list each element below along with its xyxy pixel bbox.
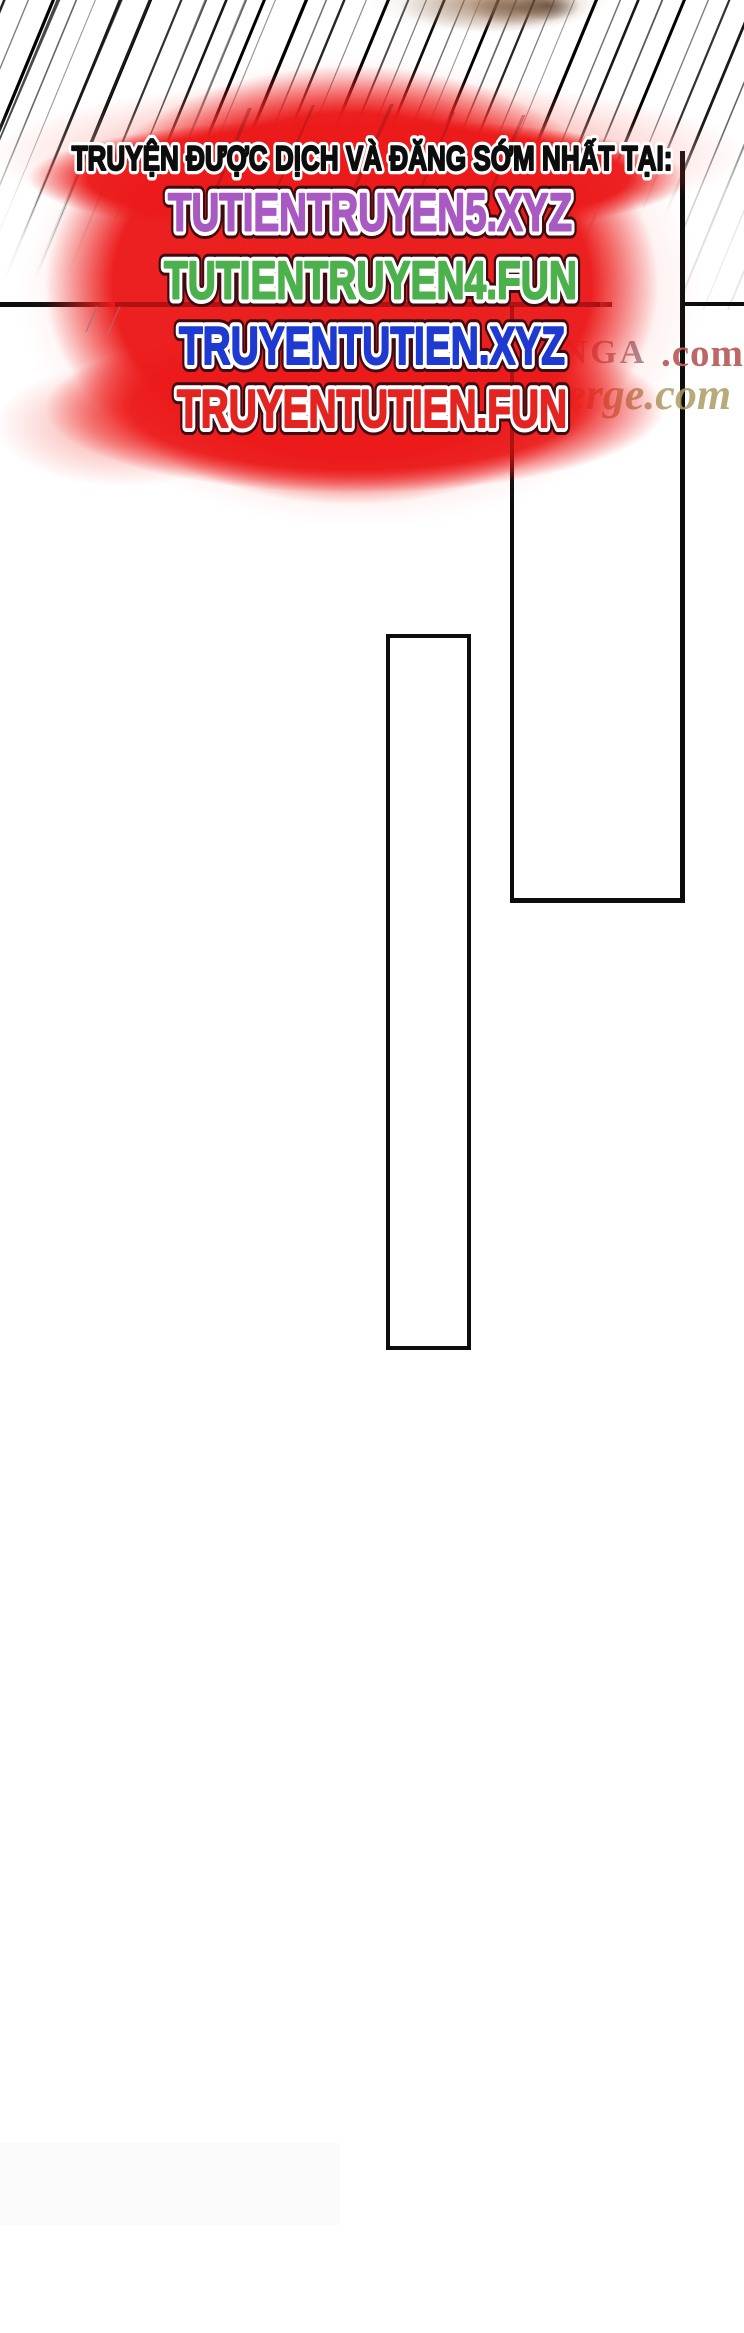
svg-text:TRUYENTUTIEN.FUN: TRUYENTUTIEN.FUN <box>177 380 567 439</box>
svg-text:TRUYỆN ĐƯỢC DỊCH VÀ ĐĂNG SỚM N: TRUYỆN ĐƯỢC DỊCH VÀ ĐĂNG SỚM NHẤT TẠI: <box>72 139 673 178</box>
svg-text:TUTIENTRUYEN4.FUN: TUTIENTRUYEN4.FUN <box>164 252 577 311</box>
svg-text:TUTIENTRUYEN5.XYZ: TUTIENTRUYEN5.XYZ <box>168 184 572 243</box>
svg-text:TRUYENTUTIEN.XYZ: TRUYENTUTIEN.XYZ <box>179 317 565 376</box>
